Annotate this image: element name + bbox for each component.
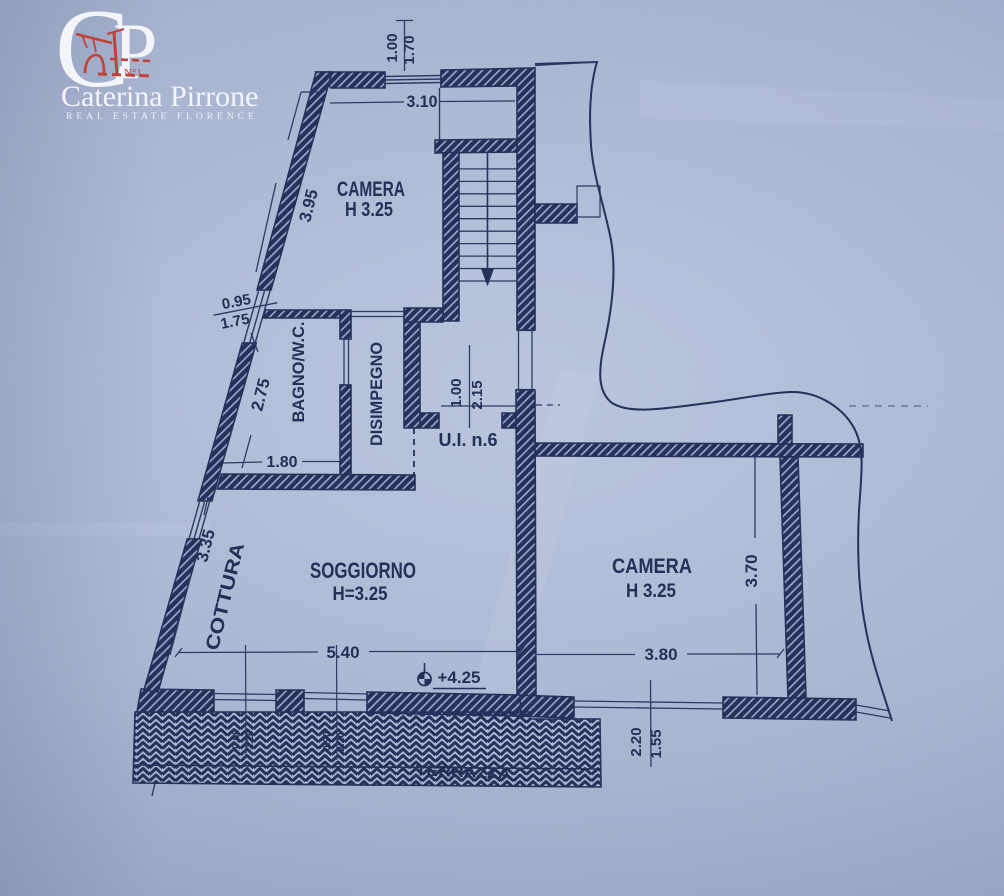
svg-text:1.00: 1.00 [384,33,401,62]
svg-text:5.40: 5.40 [326,643,359,662]
svg-text:BAGNO/W.C.: BAGNO/W.C. [289,322,308,423]
svg-text:TERRAZZA: TERRAZZA [415,762,511,782]
svg-text:1.55: 1.55 [648,729,665,758]
svg-text:H 3.25: H 3.25 [345,199,393,221]
svg-text:0.90: 0.90 [322,731,333,751]
svg-text:2.20: 2.20 [245,730,256,750]
svg-text:SOGGIORNO: SOGGIORNO [310,558,416,583]
svg-text:2.20: 2.20 [628,727,645,756]
svg-text:1.70: 1.70 [401,35,418,64]
svg-text:REAL ESTATE FLORENCE: REAL ESTATE FLORENCE [66,112,258,122]
svg-text:H=3.25: H=3.25 [333,584,388,605]
svg-text:1.80: 1.80 [266,454,297,471]
svg-text:3.70: 3.70 [742,554,761,587]
svg-text:CAMERA: CAMERA [612,555,692,578]
svg-text:N°1: N°1 [124,67,142,79]
svg-text:0.90: 0.90 [231,729,242,749]
svg-text:1.00: 1.00 [448,378,465,407]
svg-text:CAMERA: CAMERA [337,178,405,201]
svg-text:3.10: 3.10 [407,92,438,111]
svg-text:DISIMPEGNO: DISIMPEGNO [367,342,386,446]
svg-text:U.I. n.6: U.I. n.6 [438,430,497,450]
svg-text:Caterina Pirrone: Caterina Pirrone [61,80,258,113]
svg-text:2.20: 2.20 [336,732,347,752]
svg-text:+4.25: +4.25 [437,668,480,687]
svg-text:3.80: 3.80 [644,645,677,664]
svg-text:2.15: 2.15 [469,380,486,409]
svg-text:H 3.25: H 3.25 [626,581,676,602]
